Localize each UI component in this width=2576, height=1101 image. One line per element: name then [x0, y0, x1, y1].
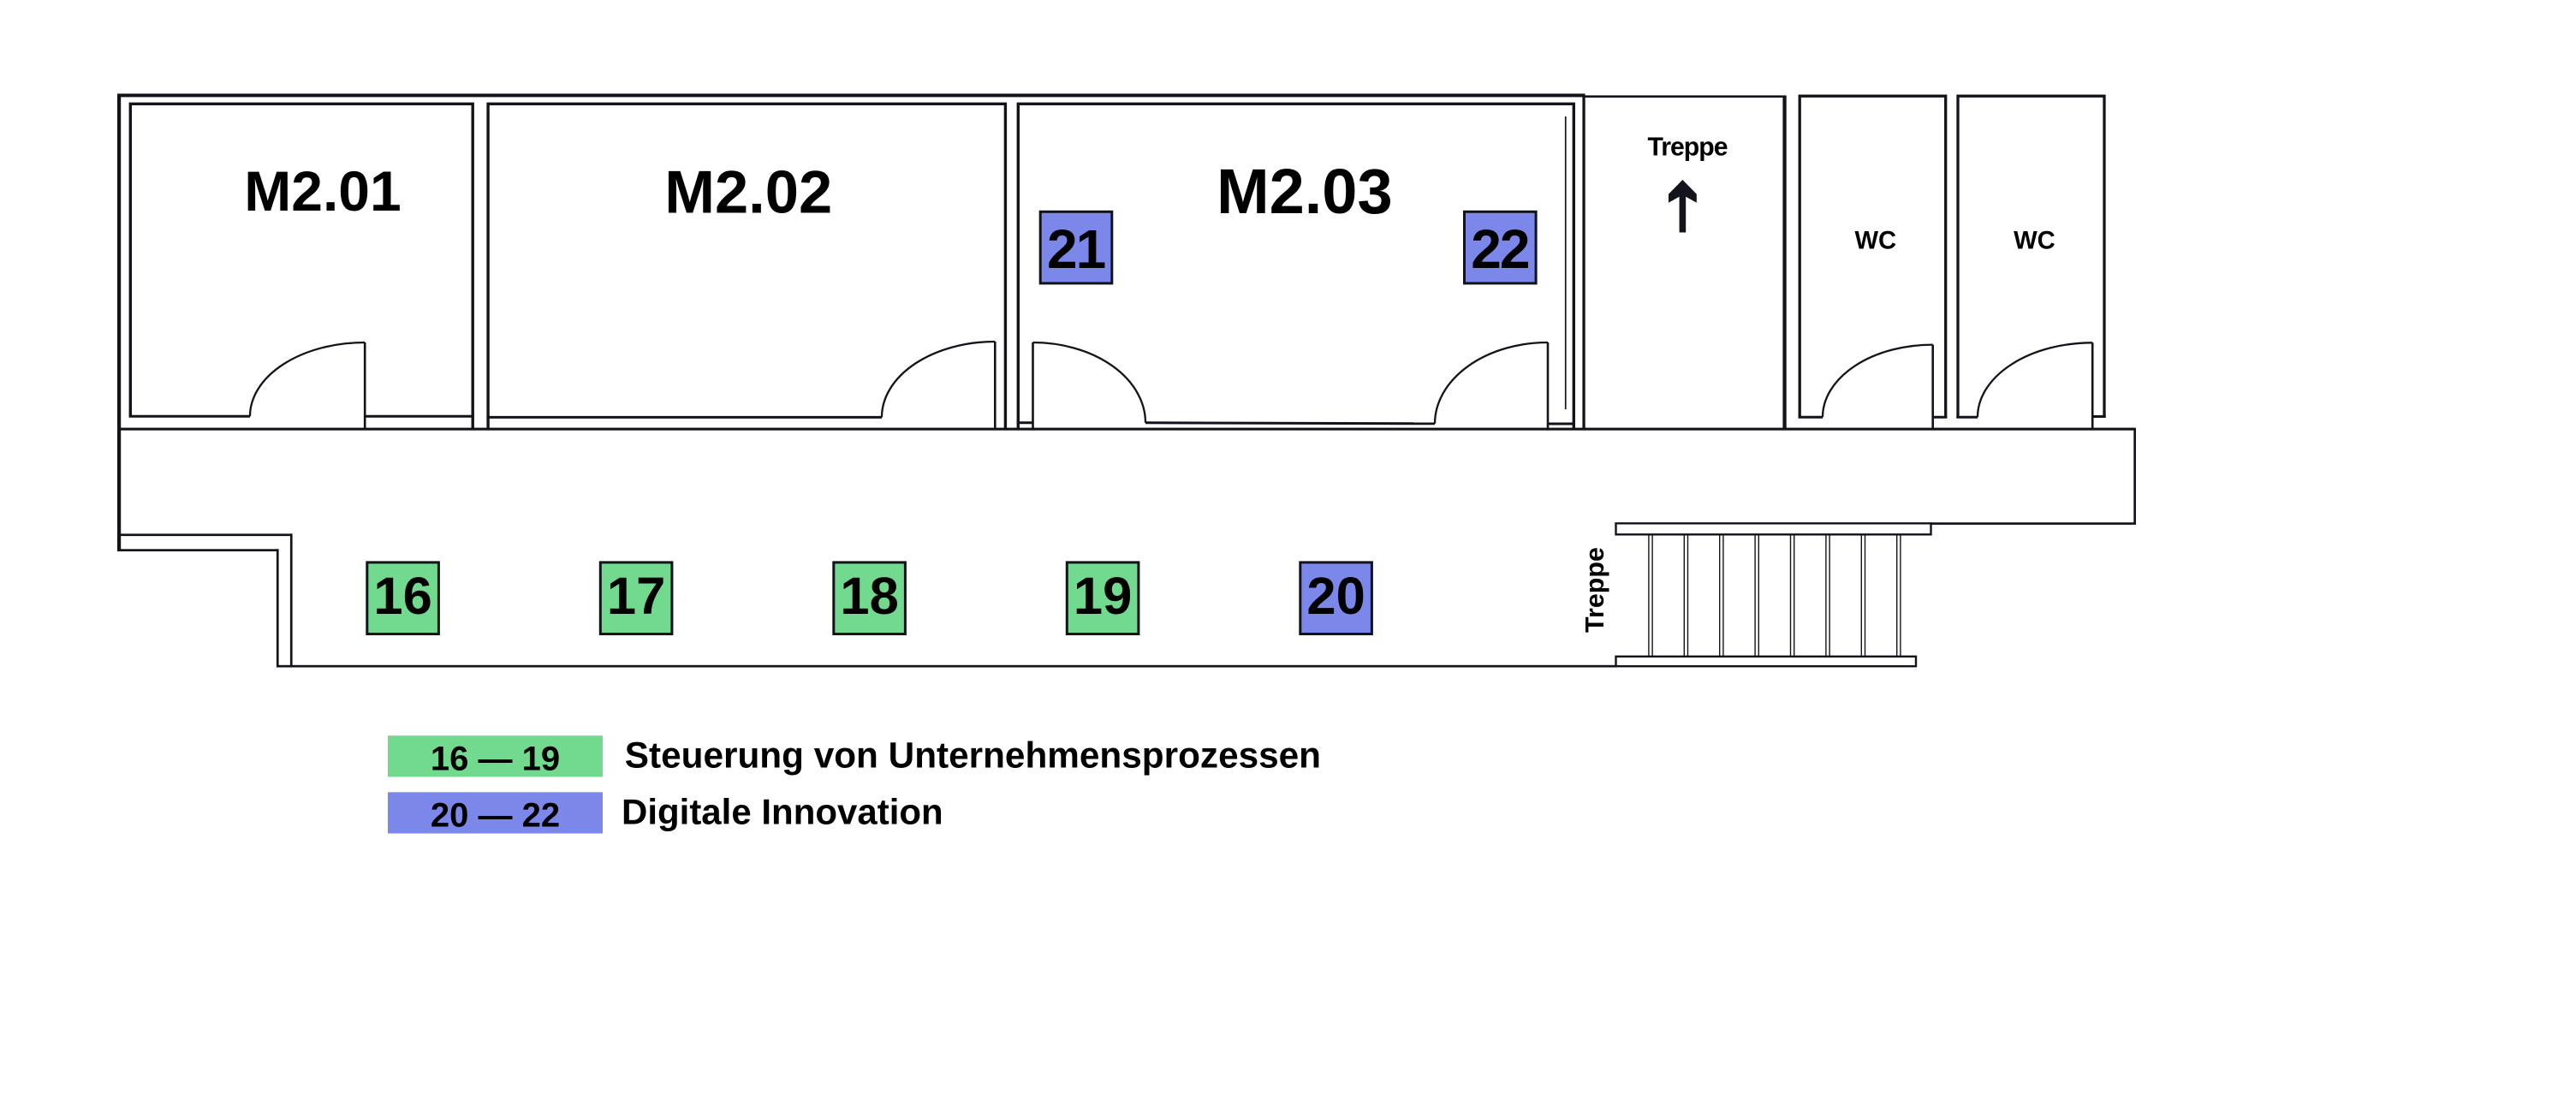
svg-text:Steuerung von Unternehmensproz: Steuerung von Unternehmensprozessen — [625, 735, 1321, 776]
svg-text:20 — 22: 20 — 22 — [431, 796, 560, 834]
svg-text:Treppe: Treppe — [1648, 133, 1728, 161]
svg-text:16: 16 — [373, 567, 431, 626]
svg-text:22: 22 — [1471, 218, 1529, 280]
svg-text:19: 19 — [1074, 567, 1132, 626]
svg-text:Treppe: Treppe — [1580, 547, 1609, 633]
svg-text:17: 17 — [607, 567, 665, 626]
svg-text:18: 18 — [840, 567, 898, 626]
svg-text:20: 20 — [1306, 567, 1365, 626]
svg-text:M2.01: M2.01 — [244, 159, 401, 223]
svg-text:WC: WC — [2014, 227, 2055, 254]
svg-text:16 — 19: 16 — 19 — [431, 740, 560, 777]
svg-text:M2.03: M2.03 — [1217, 156, 1393, 227]
svg-text:WC: WC — [1854, 227, 1896, 254]
svg-text:21: 21 — [1047, 218, 1105, 280]
svg-text:Digitale Innovation: Digitale Innovation — [622, 792, 943, 832]
svg-text:M2.02: M2.02 — [664, 158, 832, 226]
